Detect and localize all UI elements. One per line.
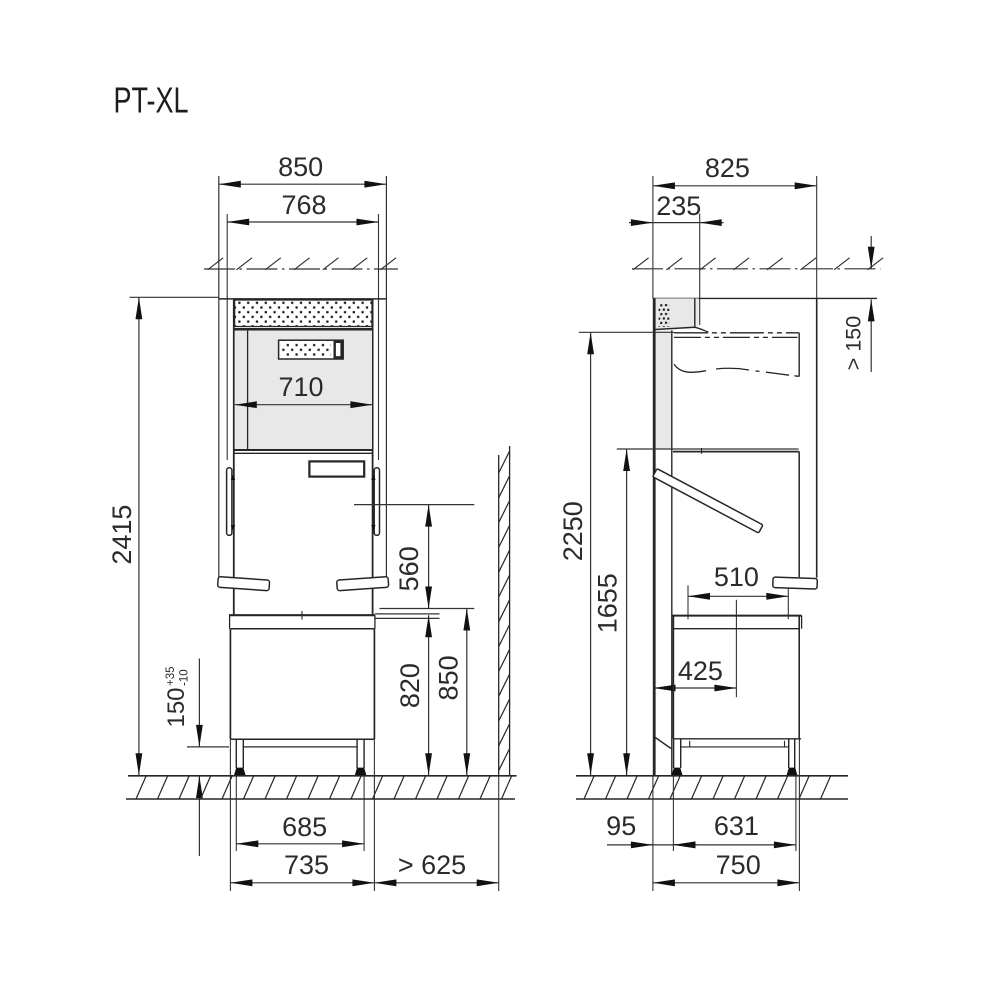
svg-text:PT-XL: PT-XL <box>114 80 189 121</box>
svg-text:235: 235 <box>656 191 701 221</box>
svg-text:+35: +35 <box>165 666 177 686</box>
svg-text:710: 710 <box>278 372 323 402</box>
svg-text:425: 425 <box>678 656 723 686</box>
svg-text:-10: -10 <box>179 669 191 686</box>
svg-text:95: 95 <box>606 811 636 841</box>
svg-text:560: 560 <box>394 546 424 591</box>
svg-text:1655: 1655 <box>592 573 622 633</box>
svg-text:850: 850 <box>278 152 323 182</box>
svg-text:2415: 2415 <box>107 505 137 565</box>
svg-text:825: 825 <box>705 153 750 183</box>
svg-text:735: 735 <box>284 850 329 880</box>
svg-text:510: 510 <box>714 562 759 592</box>
svg-text:> 150: > 150 <box>842 316 866 370</box>
svg-text:850: 850 <box>434 655 464 700</box>
svg-text:2250: 2250 <box>558 501 588 561</box>
svg-text:750: 750 <box>716 850 761 880</box>
svg-text:685: 685 <box>282 812 327 842</box>
svg-text:768: 768 <box>281 190 326 220</box>
svg-text:> 625: > 625 <box>398 850 466 880</box>
svg-text:150: 150 <box>163 687 190 727</box>
svg-text:820: 820 <box>395 663 425 708</box>
svg-text:631: 631 <box>714 811 759 841</box>
